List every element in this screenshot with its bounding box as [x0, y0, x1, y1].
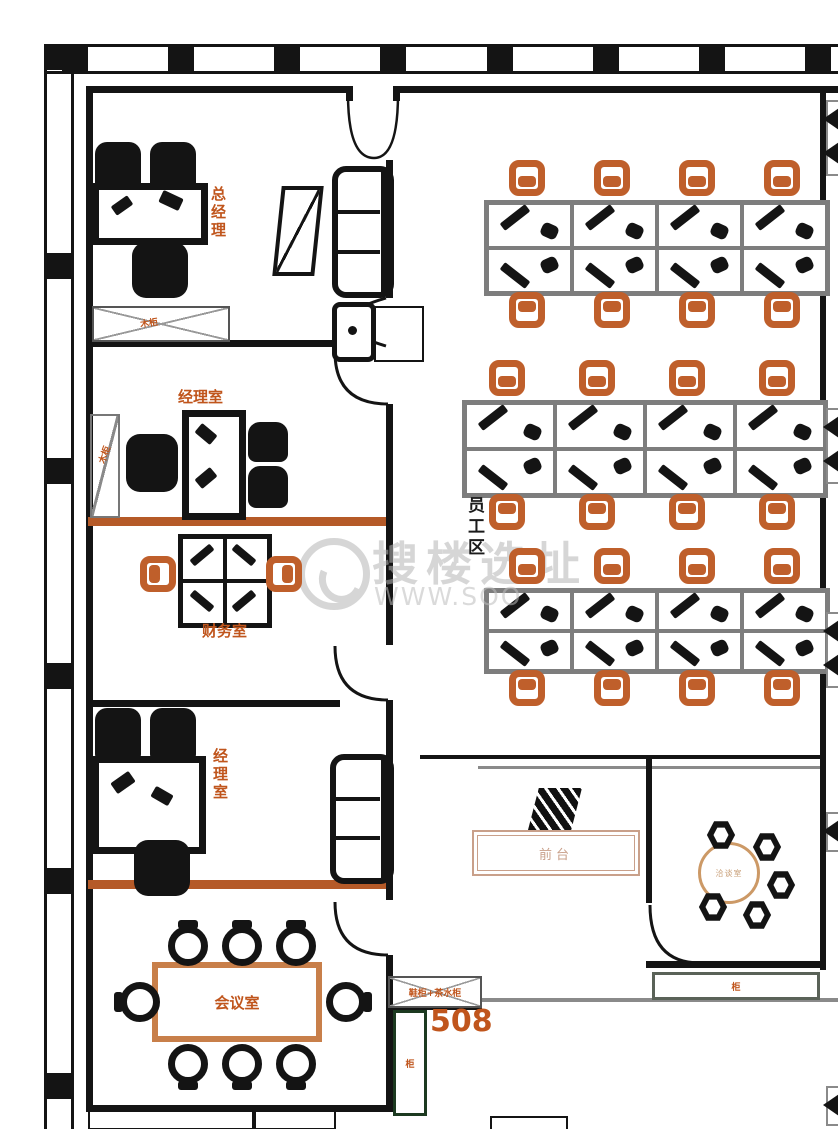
- workstation-desk: [735, 449, 825, 495]
- task-chair-icon: [612, 422, 633, 442]
- sofa: [332, 166, 394, 298]
- task-chair-icon: [612, 456, 633, 476]
- task-chair-icon: [709, 604, 730, 624]
- workstation-icon: [231, 590, 256, 613]
- balcony-edge: [88, 1110, 254, 1129]
- left-grid-line: [71, 44, 74, 1129]
- right-cabinet-label: 柜: [731, 980, 740, 993]
- left-grid-line: [44, 44, 47, 1129]
- chair-back: [286, 1081, 306, 1090]
- staff-chair: [679, 548, 715, 584]
- hex-inner: [773, 877, 789, 893]
- task-chair-icon: [624, 255, 645, 275]
- workstation-icon: [189, 590, 214, 613]
- staff-chair: [140, 556, 176, 592]
- office-chair: [126, 434, 178, 492]
- negotiation-label: 洽谈室: [716, 868, 743, 879]
- task-chair-icon: [539, 638, 560, 658]
- balcony-edge: [254, 1110, 336, 1129]
- adjacent-chair-icon: [823, 620, 838, 642]
- table-lamp-icon: [348, 326, 357, 335]
- staff-chair: [509, 670, 545, 706]
- hall-cabinet: [374, 306, 424, 362]
- chair-seat: [688, 301, 706, 312]
- meeting-room-label: 会议室: [214, 992, 259, 1013]
- hex-inner: [759, 839, 775, 855]
- adjacent-chair-icon: [823, 1094, 838, 1116]
- task-chair-icon: [539, 255, 560, 275]
- task-chair-icon: [794, 638, 815, 658]
- staff-chair: [579, 494, 615, 530]
- workstation-desk: [657, 591, 742, 631]
- chair-seat: [603, 564, 621, 575]
- gm-office-label: 总经理: [208, 186, 229, 240]
- monitor-icon: [585, 640, 616, 667]
- workstation-desk: [742, 591, 827, 631]
- chair-seat: [688, 564, 706, 575]
- conference-chair: [222, 1044, 262, 1084]
- task-chair-icon: [539, 221, 560, 241]
- workstation-desk: [742, 631, 827, 671]
- watermark: 搜楼选址 WWW.SOO: [298, 528, 618, 618]
- guest-chair: [248, 466, 288, 508]
- staff-chair: [509, 160, 545, 196]
- workstation-desk: [645, 449, 735, 495]
- wall-board: [272, 186, 323, 276]
- chair-seat: [518, 564, 536, 575]
- chair-back: [178, 920, 198, 929]
- sofa-cushion-line: [338, 250, 380, 254]
- task-chair-icon: [624, 221, 645, 241]
- staff-chair: [679, 292, 715, 328]
- adjacent-chair-icon: [823, 654, 838, 676]
- conference-chair: [222, 926, 262, 966]
- monitor-icon: [748, 404, 779, 431]
- monitor-icon: [478, 464, 509, 491]
- staff-chair: [579, 360, 615, 396]
- office-chair: [134, 840, 190, 896]
- monitor-icon: [478, 404, 509, 431]
- staff-chair: [669, 494, 705, 530]
- hex-inner: [705, 899, 721, 915]
- chair-seat: [603, 176, 621, 187]
- manager2-label: 经理室: [210, 748, 231, 802]
- monitor-icon: [585, 262, 616, 289]
- workstation-icon: [189, 544, 214, 567]
- column-block: [44, 1073, 74, 1099]
- workstation-desk: [645, 403, 735, 449]
- chair-seat: [773, 564, 791, 575]
- chair-back: [232, 1081, 252, 1090]
- manager1-desk: [182, 410, 246, 520]
- chair-back: [286, 920, 306, 929]
- monitor-icon: [500, 204, 531, 231]
- staff-chair: [759, 494, 795, 530]
- chair-seat: [768, 376, 786, 387]
- conference-table: 会议室: [152, 962, 322, 1042]
- task-chair-icon: [522, 422, 543, 442]
- monitor-icon: [755, 592, 786, 619]
- chair-seat: [588, 503, 606, 514]
- conference-chair: [276, 1044, 316, 1084]
- chair-seat: [518, 679, 536, 690]
- sofa-cushion-line: [336, 836, 380, 840]
- monitor-icon: [755, 640, 786, 667]
- column-block: [44, 44, 74, 70]
- workstation-desk: [572, 631, 657, 671]
- staff-chair: [594, 670, 630, 706]
- logo-wall-icon: [528, 788, 582, 830]
- reception-desk-inner: 前台: [477, 835, 635, 871]
- chair-seat: [603, 679, 621, 690]
- unit-number: 508: [430, 1004, 493, 1039]
- column-block: [805, 44, 831, 74]
- guest-chair: [150, 708, 196, 762]
- watermark-logo-swirl: [312, 551, 369, 609]
- office-chair: [132, 242, 188, 298]
- monitor-icon: [670, 640, 701, 667]
- task-chair-icon: [624, 604, 645, 624]
- conference-chair: [326, 982, 366, 1022]
- adjacent-chair-icon: [823, 108, 838, 130]
- staff-area-label: 员工区: [462, 496, 487, 559]
- conference-chair: [168, 926, 208, 966]
- task-chair-icon: [702, 422, 723, 442]
- chair-seat: [688, 679, 706, 690]
- right-cabinet: 柜: [652, 972, 820, 1000]
- task-chair-icon: [792, 456, 813, 476]
- column-block: [487, 44, 513, 74]
- chair-seat: [498, 503, 516, 514]
- monitor-icon: [748, 464, 779, 491]
- sofa-cushion-line: [338, 210, 380, 214]
- workstation-desk: [465, 403, 555, 449]
- column-block: [699, 44, 725, 74]
- chair-seat: [282, 565, 293, 583]
- staff-chair: [764, 548, 800, 584]
- column-block: [44, 253, 74, 279]
- adjacent-chair-icon: [823, 450, 838, 472]
- sofa-back: [381, 172, 388, 292]
- room-divider: [86, 700, 340, 707]
- door-cabinet-label: 柜: [405, 1057, 414, 1070]
- task-chair-icon: [792, 422, 813, 442]
- adjacent-chair-icon: [823, 416, 838, 438]
- column-block: [593, 44, 619, 74]
- door-jamb: [393, 86, 400, 101]
- column-block: [274, 44, 300, 74]
- side-table: [332, 302, 376, 362]
- chair-seat: [773, 679, 791, 690]
- staff-chair: [594, 548, 630, 584]
- workstation-desk: [657, 631, 742, 671]
- staff-chair: [679, 670, 715, 706]
- watermark-url: WWW.SOO: [374, 582, 522, 611]
- adjacent-unit-desk: [826, 100, 838, 176]
- workstation-desk: [735, 403, 825, 449]
- workstation-desk: [742, 248, 827, 293]
- sofa-cushion-line: [336, 797, 380, 801]
- column-block: [44, 663, 74, 689]
- adjacent-unit-desk: [826, 1086, 838, 1126]
- finance-label: 财务室: [202, 620, 247, 641]
- guest-chair: [248, 422, 288, 462]
- chair-back: [363, 992, 372, 1012]
- staff-chair: [594, 292, 630, 328]
- task-chair-icon: [522, 456, 543, 476]
- adjacent-chair-icon: [823, 142, 838, 164]
- negotiation-chair: [742, 900, 772, 930]
- workstation-desk: [657, 248, 742, 293]
- monitor-icon: [670, 592, 701, 619]
- workstation-desk: [742, 203, 827, 248]
- workstation-desk: [487, 203, 572, 248]
- adjacent-unit-desk: [826, 812, 838, 852]
- staff-chair: [764, 292, 800, 328]
- staff-chair: [764, 670, 800, 706]
- chair-seat: [773, 301, 791, 312]
- task-chair-icon: [794, 604, 815, 624]
- staff-chair: [594, 160, 630, 196]
- monitor-icon: [658, 464, 689, 491]
- chair-back: [178, 1081, 198, 1090]
- monitor-icon: [568, 464, 599, 491]
- gm-cabinet-label: 木柜: [139, 315, 159, 330]
- door-arc: [335, 646, 388, 700]
- chair-seat: [498, 376, 516, 387]
- staff-chair: [679, 160, 715, 196]
- staff-chair: [266, 556, 302, 592]
- sofa: [330, 754, 394, 884]
- chair-seat: [518, 176, 536, 187]
- finance-cluster-table: [178, 534, 272, 628]
- monitor-icon: [500, 262, 531, 289]
- workstation-desk: [555, 403, 645, 449]
- door-arc: [374, 94, 398, 158]
- staff-chair: [489, 360, 525, 396]
- entry-cabinet-label: 鞋柜+茶水柜: [409, 986, 462, 999]
- monitor-icon: [568, 404, 599, 431]
- chair-seat: [678, 376, 696, 387]
- negotiation-chair: [766, 870, 796, 900]
- column-block: [44, 868, 74, 894]
- floor-plan-canvas: 总经理 木柜 经理室 木柜 财务室 经理室 会议: [0, 0, 838, 1129]
- column-block: [44, 458, 74, 484]
- adjacent-unit-desk: [826, 612, 838, 688]
- door-arc: [335, 902, 388, 955]
- reception-partition: [420, 755, 820, 759]
- task-chair-icon: [794, 255, 815, 275]
- door-arc: [650, 905, 700, 963]
- staff-chair: [764, 160, 800, 196]
- negotiation-wall: [646, 755, 652, 903]
- workstation-desk: [487, 248, 572, 293]
- task-chair-icon: [709, 638, 730, 658]
- workstation-desk: [465, 449, 555, 495]
- monitor-icon: [755, 204, 786, 231]
- column-block: [168, 44, 194, 74]
- staff-chair: [509, 292, 545, 328]
- staff-chair: [509, 548, 545, 584]
- table-divider: [183, 579, 267, 583]
- conference-chair: [276, 926, 316, 966]
- door-jamb: [346, 86, 353, 101]
- chair-seat: [768, 503, 786, 514]
- chair-seat: [688, 176, 706, 187]
- task-chair-icon: [702, 456, 723, 476]
- chair-seat: [603, 301, 621, 312]
- workstation-desk: [572, 248, 657, 293]
- gm-desk: [92, 183, 208, 245]
- conference-chair: [168, 1044, 208, 1084]
- workstation-desk: [657, 203, 742, 248]
- conference-chair: [120, 982, 160, 1022]
- door-arc: [348, 94, 374, 158]
- staff-chair: [669, 360, 705, 396]
- workstation-desk: [572, 203, 657, 248]
- reception-desk: 前台: [472, 830, 640, 876]
- top-wall: [86, 86, 346, 93]
- monitor-icon: [755, 262, 786, 289]
- negotiation-chair: [752, 832, 782, 862]
- adjacent-chair-icon: [823, 820, 838, 842]
- monitor-icon: [670, 204, 701, 231]
- adjacent-unit-desk: [826, 408, 838, 484]
- reception-label: 前台: [539, 844, 573, 863]
- chair-back: [114, 992, 123, 1012]
- chair-seat: [518, 301, 536, 312]
- task-chair-icon: [624, 638, 645, 658]
- entry-door-panel: 柜: [393, 1010, 427, 1116]
- monitor-icon: [658, 404, 689, 431]
- workstation-grid: [462, 400, 828, 498]
- column-block: [380, 44, 406, 74]
- chair-seat: [678, 503, 696, 514]
- staff-chair: [759, 360, 795, 396]
- staff-chair: [489, 494, 525, 530]
- gm-cabinet: [92, 306, 230, 342]
- sofa-back: [381, 760, 388, 878]
- task-chair-icon: [709, 255, 730, 275]
- balcony-edge: [490, 1116, 568, 1129]
- chair-seat: [588, 376, 606, 387]
- workstation-desk: [555, 449, 645, 495]
- monitor-icon: [500, 640, 531, 667]
- chair-seat: [149, 565, 160, 583]
- side-cabinet: [90, 414, 120, 518]
- guest-chair: [95, 708, 141, 762]
- task-chair-icon: [709, 221, 730, 241]
- top-wall: [400, 86, 838, 93]
- workstation-grid: [484, 200, 830, 296]
- hex-inner: [713, 827, 729, 843]
- monitor-icon: [670, 262, 701, 289]
- chair-seat: [773, 176, 791, 187]
- workstation-icon: [231, 544, 256, 567]
- manager1-label: 经理室: [178, 386, 223, 407]
- monitor-icon: [585, 204, 616, 231]
- workstation-desk: [487, 631, 572, 671]
- task-chair-icon: [794, 221, 815, 241]
- chair-back: [232, 920, 252, 929]
- negotiation-wall: [646, 961, 826, 968]
- hex-inner: [749, 907, 765, 923]
- watermark-logo-icon: [298, 538, 370, 610]
